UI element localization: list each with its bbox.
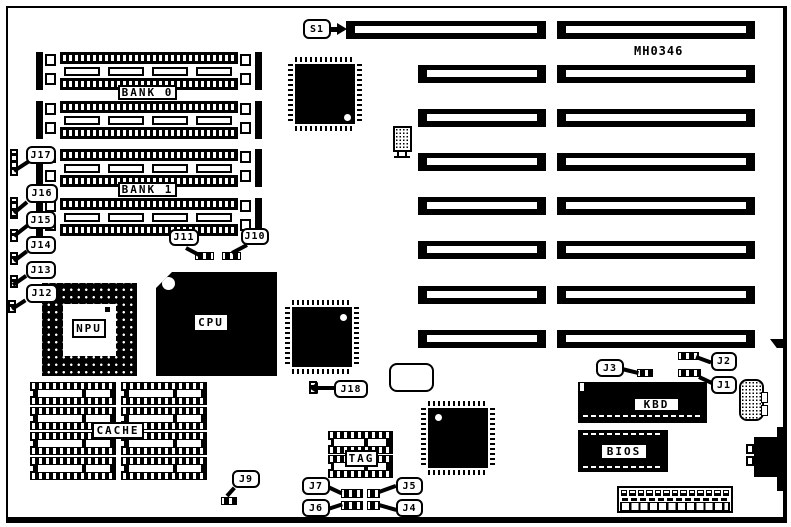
keyboard-din-connector: [739, 379, 764, 421]
isa-slot: [346, 21, 546, 39]
jumper-j6: [341, 501, 363, 510]
callout-j16-text: J16: [31, 188, 52, 199]
cpu-label: CPU: [193, 313, 229, 332]
bank0-label: BANK 0: [118, 85, 177, 100]
callout-s1-text: S1: [310, 24, 324, 35]
bank1-label: BANK 1: [118, 182, 177, 197]
cache-socket: [121, 457, 207, 480]
cache-socket: [30, 457, 116, 480]
board-id-text: MH0346: [634, 44, 683, 58]
callout-j1: J1: [711, 376, 737, 394]
cache-label-text: CACHE: [96, 424, 139, 437]
callout-j9: J9: [232, 470, 260, 488]
tag-label: TAG: [345, 450, 378, 467]
cache-socket: [30, 382, 116, 405]
jumper-j7: [341, 489, 363, 498]
empty-socket-outline: [389, 363, 434, 392]
callout-j13-text: J13: [30, 265, 51, 276]
isa-slot: [418, 286, 546, 304]
callout-j17-text: J17: [30, 150, 51, 161]
cache-label: CACHE: [92, 422, 144, 439]
callout-j4-text: J4: [402, 503, 416, 514]
cache-socket: [121, 382, 207, 405]
callout-j18: J18: [334, 380, 368, 398]
callout-j5-text: J5: [402, 481, 416, 492]
callout-j1-text: J1: [717, 380, 731, 391]
callout-j12: J12: [26, 284, 58, 303]
tag-label-text: TAG: [349, 452, 375, 465]
jumper-j1: [678, 369, 701, 377]
isa-slot: [418, 65, 546, 83]
callout-j7-text: J7: [309, 481, 323, 492]
qfp-chip: [285, 300, 359, 374]
callout-j18-text: J18: [340, 384, 361, 395]
callout-j3: J3: [596, 359, 624, 377]
callout-j7: J7: [302, 477, 330, 495]
isa-slot: [557, 153, 755, 171]
isa-slot: [557, 197, 755, 215]
callout-j10: J10: [241, 228, 269, 245]
callout-j4: J4: [396, 499, 423, 517]
callout-j14-text: J14: [30, 240, 51, 251]
bank0-label-text: BANK 0: [122, 86, 174, 99]
motherboard-diagram: MH0346: [0, 0, 791, 527]
callout-j12-text: J12: [31, 288, 52, 299]
bios-label-text: BIOS: [607, 445, 642, 458]
power-connector: [754, 437, 787, 477]
npu-label-text: NPU: [76, 322, 102, 335]
callout-j16: J16: [26, 184, 58, 203]
isa-slot: [557, 330, 755, 348]
npu-pin1-mark: [105, 307, 110, 312]
callout-j9-text: J9: [239, 474, 253, 485]
isa-slot: [557, 21, 755, 39]
isa-slot: [418, 330, 546, 348]
callout-j6-text: J6: [309, 503, 323, 514]
isa-slot: [557, 109, 755, 127]
kbd-label-text: KBD: [644, 398, 670, 411]
isa-slot: [557, 65, 755, 83]
callout-j15: J15: [26, 211, 56, 229]
jumper-j9: [221, 497, 237, 505]
callout-j13: J13: [26, 261, 56, 279]
qfp-chip: [288, 57, 362, 131]
crystal-foot: [402, 156, 410, 158]
callout-j2-text: J2: [717, 356, 731, 367]
callout-j10-text: J10: [244, 231, 265, 242]
bottom-header-connector: [617, 486, 733, 513]
callout-j5: J5: [396, 477, 423, 495]
npu-label: NPU: [72, 319, 106, 338]
isa-slot: [418, 153, 546, 171]
isa-slot: [557, 241, 755, 259]
callout-j17: J17: [26, 146, 56, 164]
callout-j6: J6: [302, 499, 330, 517]
qfp-chip: [421, 401, 495, 475]
simm-socket: [36, 196, 262, 238]
crystal-oscillator: [393, 126, 412, 152]
bank1-label-text: BANK 1: [122, 183, 174, 196]
kbd-label: KBD: [633, 397, 680, 412]
crystal-foot: [394, 156, 402, 158]
callout-j11-text: J11: [173, 232, 194, 243]
jumper-j3: [637, 369, 653, 377]
callout-j2: J2: [711, 352, 737, 371]
callout-j11: J11: [169, 229, 199, 246]
cpu-label-text: CPU: [198, 316, 224, 329]
isa-slot: [418, 241, 546, 259]
isa-slot: [418, 109, 546, 127]
isa-slot: [557, 286, 755, 304]
bios-label: BIOS: [600, 443, 648, 460]
simm-socket: [36, 99, 262, 141]
callout-j14: J14: [26, 236, 56, 254]
callout-s1: S1: [303, 19, 331, 39]
isa-slot: [418, 197, 546, 215]
callout-j3-text: J3: [603, 363, 617, 374]
callout-j15-text: J15: [30, 215, 51, 226]
